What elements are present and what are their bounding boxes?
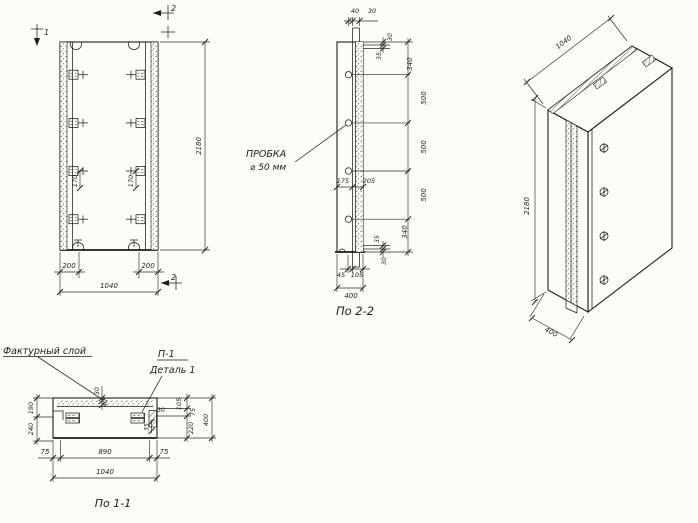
dim-sec11-bottom-right: 75 xyxy=(160,448,169,456)
dim-sec22-bottom-b: 105 xyxy=(351,271,363,279)
iso-joint-strip xyxy=(566,120,577,306)
detail-ref-text: П-1 xyxy=(158,349,175,360)
facing-layer-right xyxy=(151,42,158,250)
connection-loop-left xyxy=(66,413,80,423)
anchor-bracket xyxy=(126,215,145,224)
dim-front-rib-right: 200 xyxy=(141,262,155,270)
dim-sec22-chain-0: 340 xyxy=(406,57,414,71)
caption-section-2-2: По 2-2 xyxy=(336,304,374,318)
section-mark-2-top: 2 xyxy=(153,4,176,38)
anchor-bracket xyxy=(126,118,145,127)
texture-layer-label: Фактурный слой xyxy=(3,346,103,400)
dim-sec22-chain-1: 500 xyxy=(420,91,428,105)
dim-sec11-chain-1: 75 xyxy=(189,408,197,416)
dim-sec11-right-small-b: 35 xyxy=(144,423,151,431)
lifting-loop-top-right xyxy=(129,42,140,50)
dim-iso-depth: 400 xyxy=(543,326,559,340)
view-front-elevation: 170 170 2180 200 200 1040 1 xyxy=(31,4,210,296)
detail-name-text: Деталь 1 xyxy=(149,365,195,376)
facing-layer-left xyxy=(60,42,67,250)
dim-front-rib-left: 200 xyxy=(62,262,76,270)
dim-sec11-bottom-center: 890 xyxy=(98,448,112,456)
section-mark-2-bottom-label: 2 xyxy=(171,273,176,282)
section-mark-2-top-label: 2 xyxy=(171,4,176,13)
dim-sec22-mid-b: 205 xyxy=(363,177,375,185)
view-isometric: 1040 2180 400 xyxy=(523,15,672,343)
plug-holes xyxy=(345,72,351,223)
anchor-bracket xyxy=(69,118,88,127)
dim-front-width: 1040 xyxy=(100,282,118,290)
plug-leader-line xyxy=(295,125,346,162)
dim-sec22-edge-top-b: 35 xyxy=(376,52,383,60)
dim-sec22-edge-bottom-b: 30 xyxy=(381,257,388,265)
dim-sec11-bottom-left: 75 xyxy=(41,448,50,456)
view-section-2-2: 40 30 30 35 340 500 500 500 340 35 30 17… xyxy=(246,7,428,318)
view-section-1-1: 190 240 30 40 30 35 105 75 220 400 7 xyxy=(3,346,216,510)
section-mark-1: 1 xyxy=(31,24,49,46)
dim-front-height: 2180 xyxy=(195,137,203,155)
anchor-bracket xyxy=(69,215,88,224)
dim-sec22-edge-top-a: 30 xyxy=(387,33,394,41)
panel-drawing: 170 170 2180 200 200 1040 1 xyxy=(0,0,698,523)
dim-sec11-left-a: 190 xyxy=(27,402,35,414)
plug-label: ПРОБКА ⌀ 50 мм xyxy=(246,125,346,173)
dim-sec22-top-a: 40 xyxy=(351,7,359,15)
dim-sec22-chain-2: 500 xyxy=(420,140,428,154)
caption-section-1-1: По 1-1 xyxy=(95,497,131,510)
dim-sec11-chain-0: 105 xyxy=(175,398,183,410)
facing-layer-edge xyxy=(356,42,364,252)
dim-sec11-width: 1040 xyxy=(96,468,114,476)
dim-front-pitch-right: 170 xyxy=(127,175,135,187)
dim-sec22-bottom-a: 45 xyxy=(337,271,345,279)
dim-sec22-edge-bottom-a: 35 xyxy=(374,235,381,243)
dim-iso-height: 2180 xyxy=(523,197,531,215)
connection-loop-right xyxy=(131,413,145,423)
dim-sec11-center-a: 30 xyxy=(94,387,101,395)
texture-layer-label-text: Фактурный слой xyxy=(3,346,86,357)
dim-sec22-depth: 400 xyxy=(344,292,358,300)
plug-label-line2: ⌀ 50 мм xyxy=(250,163,286,173)
dim-sec11-center-b: 40 xyxy=(102,399,109,407)
dim-sec22-chain-3: 500 xyxy=(420,188,428,202)
anchor-bracket xyxy=(126,70,145,79)
dim-front-pitch-left: 170 xyxy=(71,175,79,187)
dim-sec11-depth: 400 xyxy=(202,414,210,426)
section-mark-2-bottom: 2 xyxy=(161,273,182,290)
section-mark-1-label: 1 xyxy=(44,28,49,37)
dim-sec11-left-b: 240 xyxy=(27,423,35,435)
plug-label-line1: ПРОБКА xyxy=(246,149,286,160)
drawing-sheet: 170 170 2180 200 200 1040 1 xyxy=(0,0,698,523)
dim-sec11-chain-2: 220 xyxy=(187,422,195,434)
dim-sec22-mid-a: 175 xyxy=(337,177,349,185)
texture-layer-leader xyxy=(38,357,103,400)
anchor-bracket xyxy=(69,70,88,79)
dim-sec22-chain-4: 340 xyxy=(401,225,409,239)
anchor-bracket xyxy=(69,167,88,176)
dim-sec11-right-small-a: 30 xyxy=(157,407,165,414)
dim-sec22-top-b: 30 xyxy=(368,7,376,15)
